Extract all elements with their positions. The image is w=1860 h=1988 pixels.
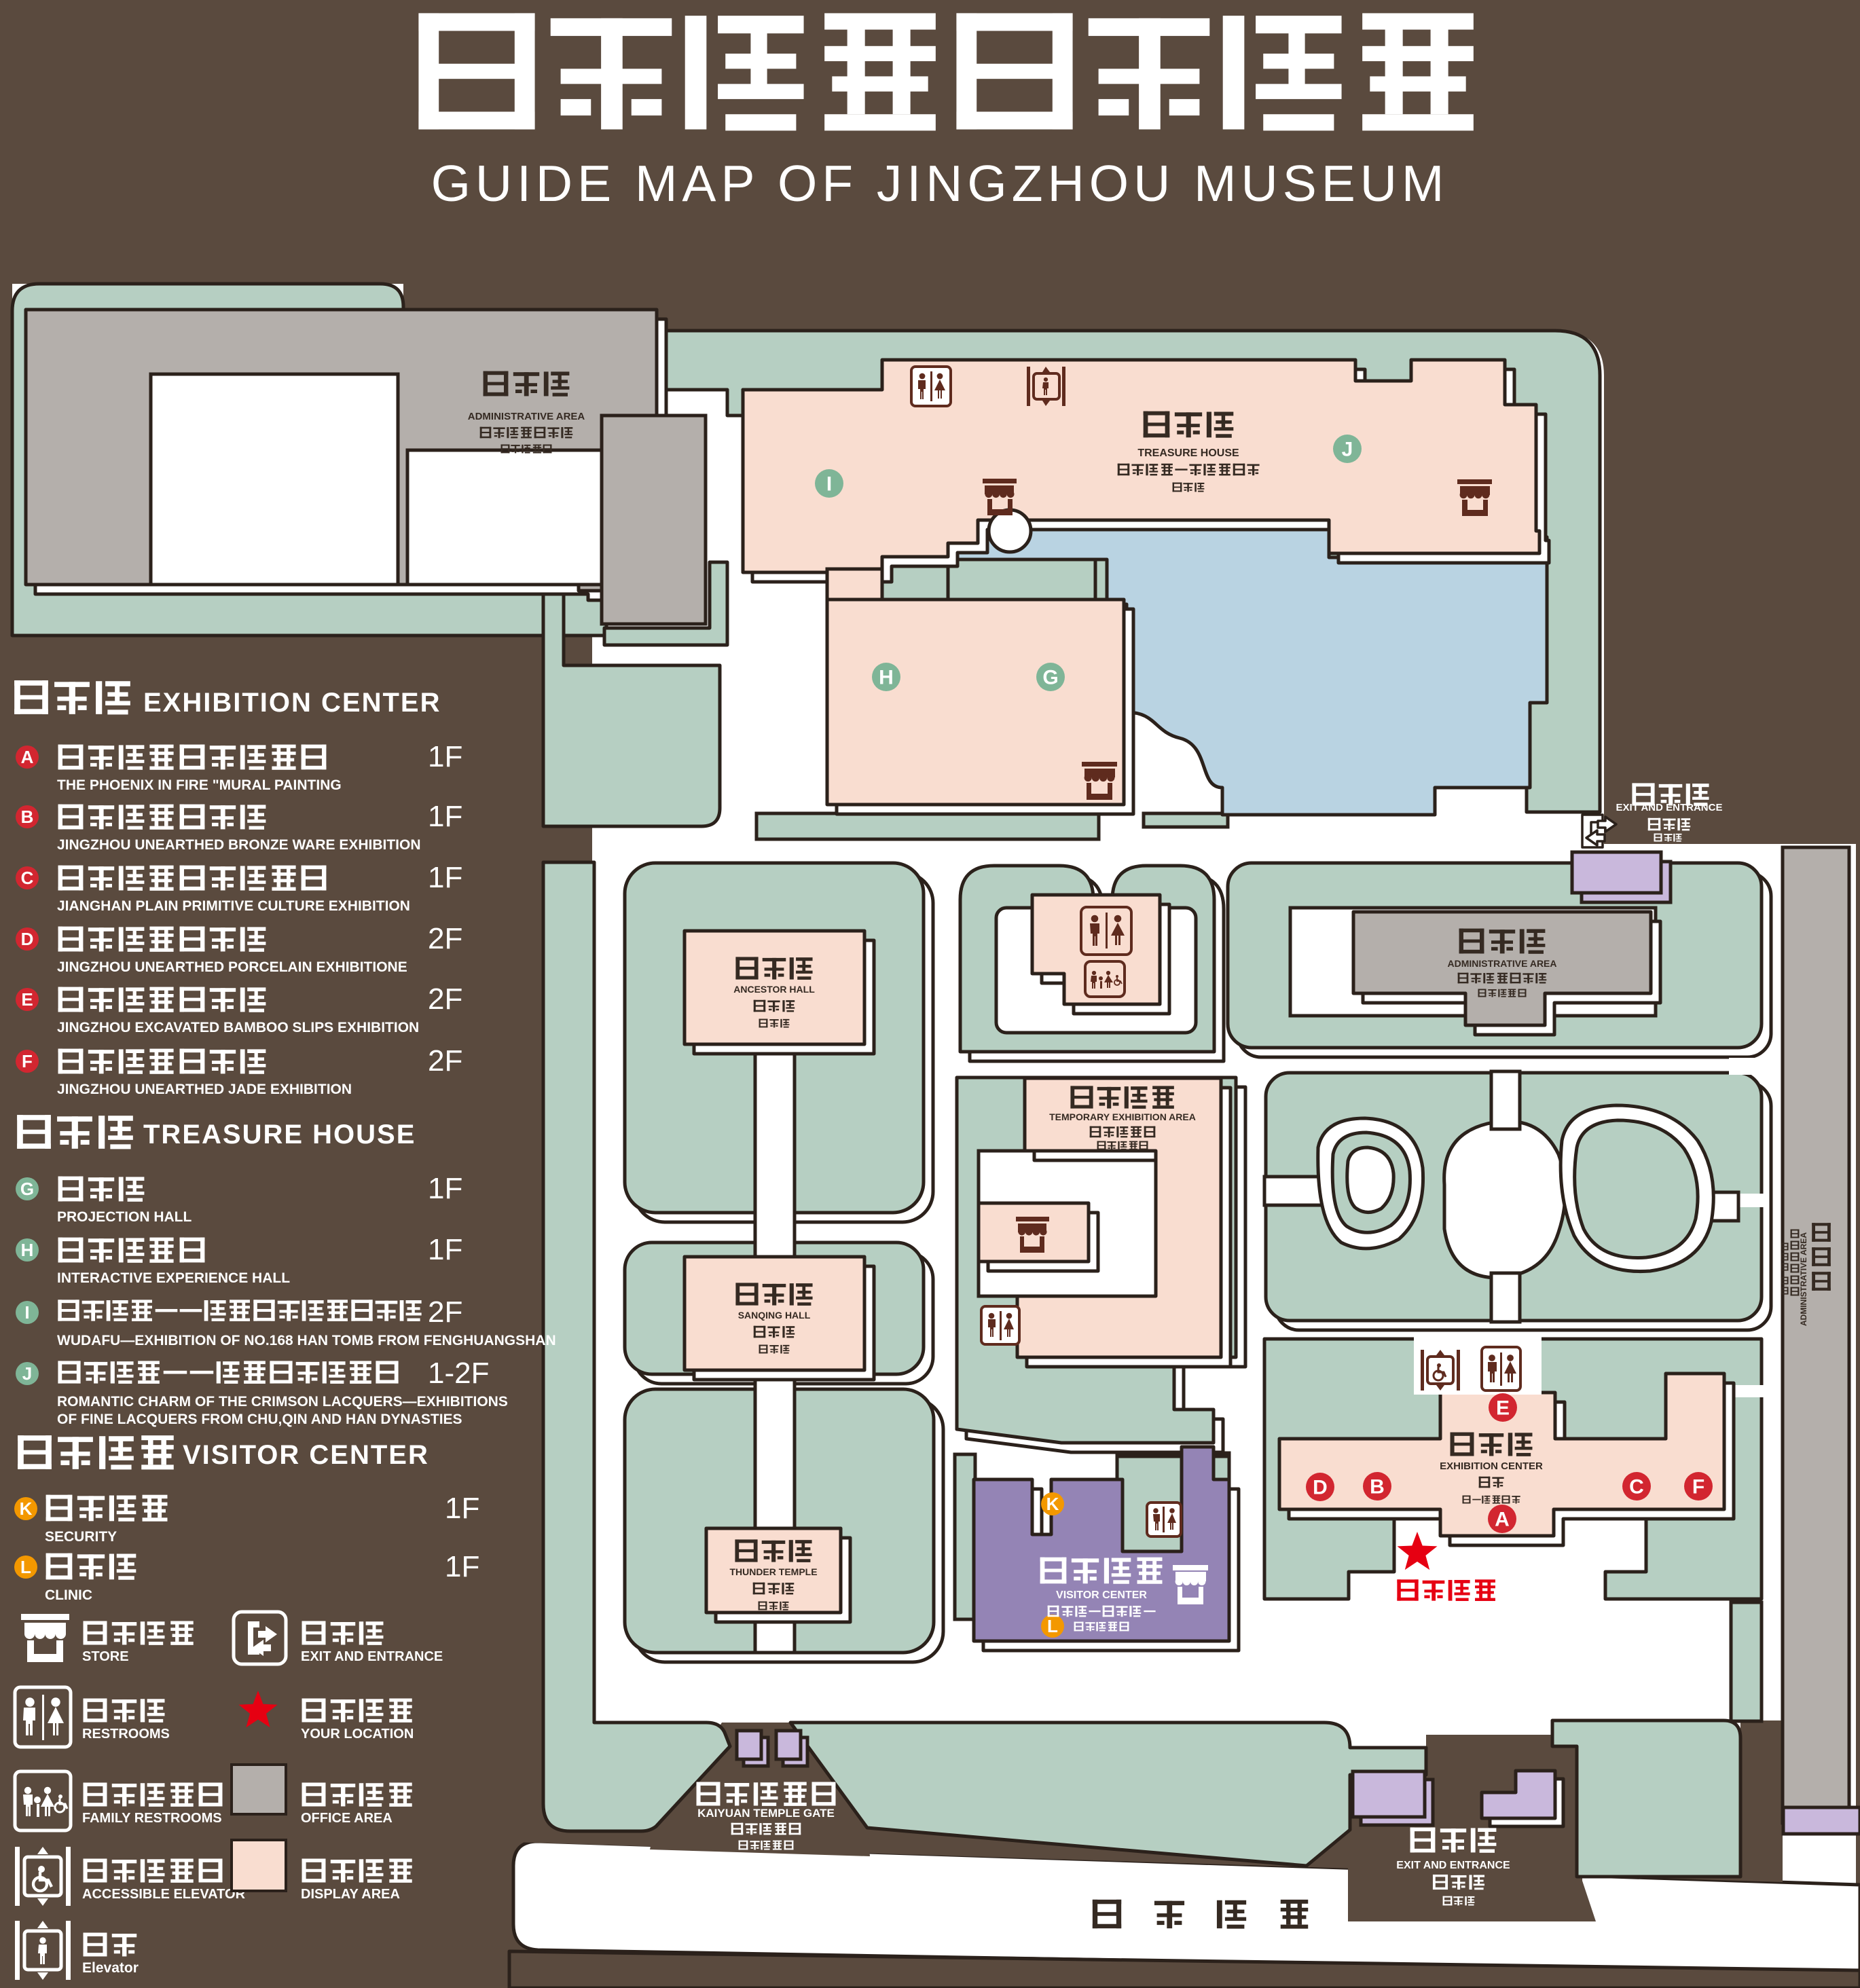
- svg-text:G: G: [20, 1179, 34, 1199]
- svg-text:B: B: [21, 807, 34, 827]
- svg-text:1-2F: 1-2F: [428, 1357, 489, 1390]
- svg-text:K: K: [1046, 1494, 1059, 1514]
- svg-text:1F: 1F: [428, 861, 462, 894]
- svg-text:THE PHOENIX IN FIRE "MURAL PAI: THE PHOENIX IN FIRE "MURAL PAINTING: [57, 777, 342, 793]
- svg-text:J: J: [22, 1363, 32, 1384]
- svg-text:YOUR LOCATION: YOUR LOCATION: [301, 1727, 414, 1742]
- svg-text:F: F: [1692, 1476, 1704, 1498]
- svg-text:DISPLAY AREA: DISPLAY AREA: [301, 1887, 400, 1902]
- svg-text:1F: 1F: [445, 1492, 479, 1525]
- svg-text:JINGZHOU UNEARTHED PORCELAIN E: JINGZHOU UNEARTHED PORCELAIN EXHIBITIONE: [57, 959, 407, 975]
- svg-text:EXHIBITION CENTER: EXHIBITION CENTER: [1440, 1460, 1543, 1472]
- svg-text:EXIT AND ENTRANCE: EXIT AND ENTRANCE: [1616, 802, 1723, 813]
- svg-text:ADMINISTRATIVE AREA: ADMINISTRATIVE AREA: [1799, 1232, 1808, 1326]
- svg-text:J: J: [1342, 439, 1353, 461]
- svg-text:WUDAFU—EXHIBITION OF NO.168 HA: WUDAFU—EXHIBITION OF NO.168 HAN TOMB FRO…: [57, 1333, 556, 1348]
- svg-text:G: G: [1042, 667, 1058, 689]
- svg-text:VISITOR CENTER: VISITOR CENTER: [183, 1440, 429, 1470]
- svg-text:C: C: [1629, 1476, 1644, 1498]
- svg-text:ROMANTIC CHARM OF THE CRIMSON: ROMANTIC CHARM OF THE CRIMSON LACQUERS—E…: [57, 1394, 508, 1410]
- svg-text:TREASURE HOUSE: TREASURE HOUSE: [143, 1120, 416, 1149]
- svg-text:ANCESTOR HALL: ANCESTOR HALL: [733, 984, 815, 995]
- svg-text:1F: 1F: [445, 1550, 479, 1583]
- svg-text:A: A: [21, 747, 34, 767]
- svg-text:PROJECTION HALL: PROJECTION HALL: [57, 1209, 192, 1225]
- svg-text:1F: 1F: [428, 740, 462, 773]
- svg-text:ADMINISTRATIVE AREA: ADMINISTRATIVE AREA: [1448, 958, 1557, 969]
- svg-text:OF FINE LACQUERS FROM CHU,QIN: OF FINE LACQUERS FROM CHU,QIN AND HAN DY…: [57, 1412, 462, 1427]
- svg-text:Elevator: Elevator: [82, 1960, 139, 1976]
- svg-text:D: D: [1313, 1477, 1328, 1499]
- svg-text:THUNDER TEMPLE: THUNDER TEMPLE: [729, 1566, 817, 1577]
- svg-text:B: B: [1370, 1476, 1385, 1498]
- svg-text:FAMILY RESTROOMS: FAMILY RESTROOMS: [82, 1811, 222, 1826]
- svg-text:1F: 1F: [428, 1172, 462, 1205]
- svg-text:RESTROOMS: RESTROOMS: [82, 1727, 170, 1742]
- svg-text:2F: 2F: [428, 982, 462, 1016]
- svg-text:SECURITY: SECURITY: [45, 1529, 117, 1545]
- svg-text:L: L: [20, 1557, 31, 1577]
- svg-text:OFFICE AREA: OFFICE AREA: [301, 1811, 393, 1826]
- svg-text:ADMINISTRATIVE AREA: ADMINISTRATIVE AREA: [468, 411, 585, 422]
- svg-text:EXIT AND ENTRANCE: EXIT AND ENTRANCE: [1396, 1860, 1510, 1871]
- svg-text:D: D: [21, 929, 34, 949]
- svg-text:ACCESSIBLE ELEVATOR: ACCESSIBLE ELEVATOR: [82, 1887, 246, 1902]
- svg-text:STORE: STORE: [82, 1649, 129, 1664]
- svg-text:KAIYUAN TEMPLE GATE: KAIYUAN TEMPLE GATE: [697, 1807, 835, 1820]
- svg-text:JINGZHOU UNEARTHED BRONZE WARE: JINGZHOU UNEARTHED BRONZE WARE EXHIBITIO…: [57, 837, 421, 853]
- svg-text:K: K: [20, 1498, 33, 1519]
- svg-text:A: A: [1495, 1509, 1510, 1531]
- svg-text:I: I: [826, 473, 832, 496]
- svg-text:F: F: [22, 1051, 33, 1071]
- svg-text:SANQING HALL: SANQING HALL: [738, 1310, 811, 1321]
- svg-text:JINGZHOU EXCAVATED BAMBOO SLIP: JINGZHOU EXCAVATED BAMBOO SLIPS EXHIBITI…: [57, 1020, 419, 1035]
- svg-text:CLINIC: CLINIC: [45, 1587, 92, 1603]
- svg-text:EXHIBITION CENTER: EXHIBITION CENTER: [143, 688, 441, 718]
- svg-text:GUIDE MAP OF JINGZHOU MUSEUM: GUIDE MAP OF JINGZHOU MUSEUM: [431, 155, 1449, 212]
- svg-text:INTERACTIVE EXPERIENCE HALL: INTERACTIVE EXPERIENCE HALL: [57, 1270, 290, 1286]
- svg-text:TEMPORARY EXHIBITION AREA: TEMPORARY EXHIBITION AREA: [1049, 1111, 1196, 1122]
- svg-text:VISITOR CENTER: VISITOR CENTER: [1056, 1589, 1147, 1601]
- svg-text:1F: 1F: [428, 1233, 462, 1266]
- svg-text:I: I: [24, 1302, 29, 1323]
- svg-text:2F: 2F: [428, 1044, 462, 1078]
- svg-text:2F: 2F: [428, 1295, 462, 1329]
- svg-text:L: L: [1047, 1616, 1058, 1636]
- svg-text:E: E: [1496, 1397, 1510, 1420]
- svg-text:EXIT AND ENTRANCE: EXIT AND ENTRANCE: [301, 1649, 443, 1664]
- svg-text:1F: 1F: [428, 800, 462, 833]
- svg-text:H: H: [879, 667, 894, 689]
- svg-text:2F: 2F: [428, 922, 462, 955]
- svg-text:JIANGHAN PLAIN PRIMITIVE CULTU: JIANGHAN PLAIN PRIMITIVE CULTURE EXHIBIT…: [57, 898, 410, 914]
- svg-text:JINGZHOU UNEARTHED JADE EXHIBI: JINGZHOU UNEARTHED JADE EXHIBITION: [57, 1082, 352, 1097]
- svg-text:C: C: [21, 868, 34, 888]
- svg-text:H: H: [21, 1240, 34, 1260]
- svg-text:TREASURE HOUSE: TREASURE HOUSE: [1137, 447, 1239, 459]
- svg-text:E: E: [21, 989, 33, 1010]
